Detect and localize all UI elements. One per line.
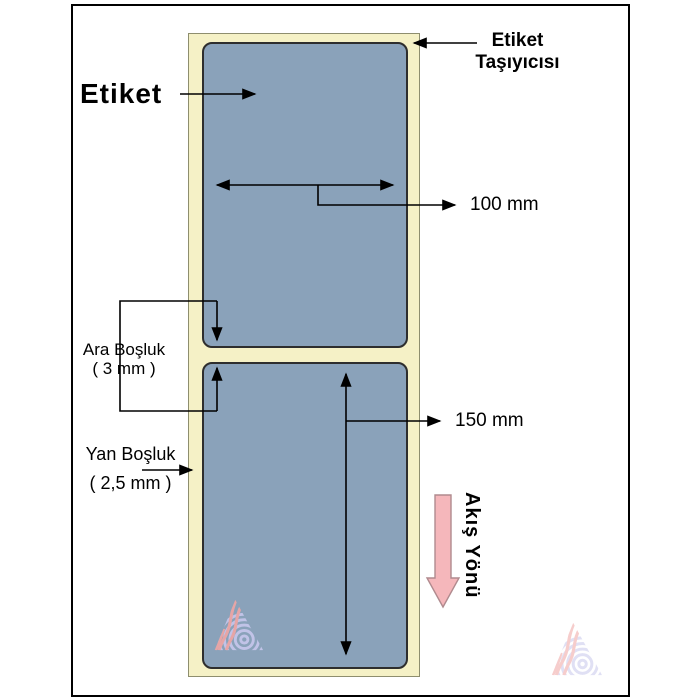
carrier-label: Etiket Taşıyıcısı [455, 30, 580, 74]
side-margin-value: ( 2,5 mm ) [73, 474, 188, 493]
flow-direction-label: Akış Yönü [460, 492, 483, 598]
height-dimension-value: 150 mm [455, 411, 524, 431]
gap-value: ( 3 mm ) [68, 359, 180, 378]
etiket-label: Etiket [80, 79, 162, 108]
carrier-label-line1: Etiket [455, 30, 580, 52]
side-margin-label: Yan Boşluk [73, 445, 188, 464]
gap-label-block: Ara Boşluk ( 3 mm ) [68, 340, 180, 378]
carrier-label-line2: Taşıyıcısı [455, 52, 580, 74]
label-top [202, 42, 408, 348]
diagram-canvas: Etiket Etiket Taşıyıcısı 100 mm 150 mm A… [0, 0, 700, 700]
gap-label: Ara Boşluk [68, 340, 180, 359]
watermark-logo-on-label [211, 598, 265, 654]
width-dimension-value: 100 mm [470, 195, 539, 215]
watermark-logo-corner [548, 621, 604, 679]
